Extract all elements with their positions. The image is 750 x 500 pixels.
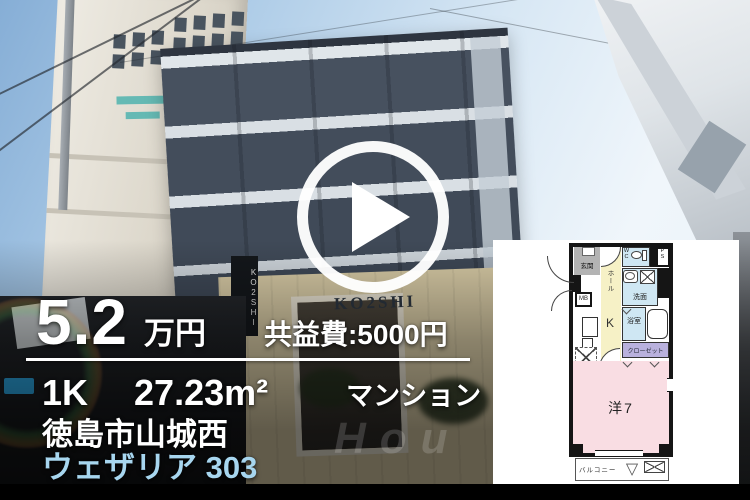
floor-area: 27.23m² bbox=[134, 372, 268, 414]
common-fee: 共益費:5000円 bbox=[264, 313, 448, 353]
price-unit: 万円 bbox=[144, 308, 206, 353]
hatch-triangle-icon: ▽ bbox=[621, 458, 643, 480]
bottom-bar bbox=[0, 484, 750, 500]
shoe-cabinet bbox=[582, 247, 595, 256]
hall-label: ホール bbox=[604, 270, 614, 293]
ps-label: PS bbox=[659, 248, 665, 260]
price-value: 5.2 bbox=[36, 292, 128, 353]
listing-card: KO2SHI KO2SHI Hou 玄関 ホール K WC PS bbox=[0, 0, 750, 500]
balcony-hatch-icon bbox=[644, 461, 665, 473]
divider-line bbox=[26, 358, 470, 361]
mb-label: MB bbox=[575, 296, 592, 302]
video-play-button[interactable] bbox=[297, 141, 449, 293]
building-type: マンション bbox=[346, 374, 481, 413]
washer-icon bbox=[640, 270, 655, 284]
bathtub-icon bbox=[647, 309, 668, 339]
entrance-door-arc bbox=[547, 256, 574, 283]
wall bbox=[658, 268, 669, 298]
wc-label: WC bbox=[623, 248, 629, 260]
washroom-label: 洗面 bbox=[622, 292, 658, 302]
sink-basin-icon bbox=[625, 272, 635, 280]
floorplan-panel: 玄関 ホール K WC PS 洗面 MB 浴室 クローゼット bbox=[493, 240, 739, 484]
window-marker bbox=[595, 450, 643, 457]
floor-layout: 1K bbox=[42, 372, 88, 414]
closet-label: クローゼット bbox=[622, 346, 669, 355]
kitchen-label: K bbox=[597, 316, 623, 330]
property-name: ウェザリア 303 bbox=[42, 442, 257, 487]
entrance-label: 玄関 bbox=[574, 260, 600, 270]
kitchen-counter-icon bbox=[582, 317, 598, 337]
main-room-label: 洋7 bbox=[573, 398, 669, 418]
toilet-icon bbox=[631, 251, 642, 259]
spec-row: 1K 27.23m² マンション bbox=[42, 372, 481, 414]
toilet-tank-icon bbox=[642, 250, 647, 261]
wall bbox=[573, 444, 583, 453]
photo-watermark: Hou bbox=[334, 414, 462, 464]
wall bbox=[659, 444, 669, 453]
window-marker bbox=[667, 378, 673, 392]
balcony-label: バルコニー bbox=[579, 464, 616, 474]
bathroom-label: 浴室 bbox=[622, 316, 646, 326]
wall bbox=[573, 275, 581, 292]
entrance-door-arc bbox=[551, 290, 572, 311]
play-triangle-icon bbox=[352, 182, 410, 252]
price-row: 5.2 万円 共益費:5000円 bbox=[36, 292, 448, 353]
